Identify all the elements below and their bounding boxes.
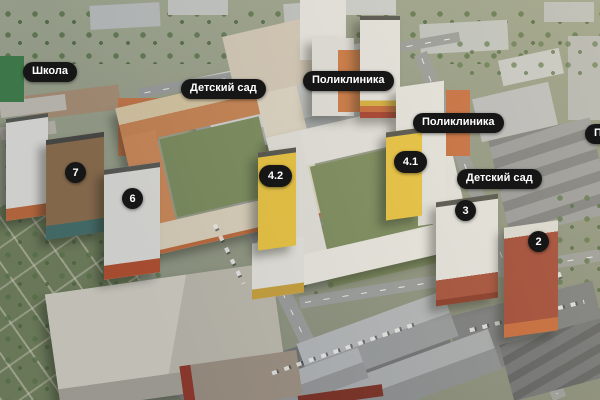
residential-tower-7 [46,132,104,240]
building-marker-3[interactable]: 3 [455,200,476,221]
residential-tower-6 [104,162,160,280]
building-marker-6[interactable]: 6 [122,188,143,209]
bg-city-block [346,0,396,15]
residential-tower-4-2 [258,147,296,250]
building-marker-4-1[interactable]: 4.1 [394,151,427,173]
building-marker-2[interactable]: 2 [528,231,549,252]
bg-city-block [89,2,160,30]
poi-label-polyclinic-1[interactable]: Поликлиника [303,71,394,91]
poi-label-polyclinic-2[interactable]: Поликлиника [413,113,504,133]
residential-tower-white [6,113,48,221]
poi-label-kindergarten-1[interactable]: Детский сад [181,79,266,99]
poi-label-truncated[interactable]: П [585,124,600,144]
bg-city-block [544,2,594,22]
building-marker-7[interactable]: 7 [65,162,86,183]
poi-label-kindergarten-2[interactable]: Детский сад [457,169,542,189]
masterplan-aerial-view: Школа Детский сад Поликлиника Поликлиник… [0,0,600,400]
poi-label-school[interactable]: Школа [23,62,77,82]
sports-field [0,56,24,102]
trees-patch [452,36,600,80]
building-marker-4-2[interactable]: 4.2 [259,165,292,187]
polyclinic-tower-1 [360,16,400,118]
residential-tower-4-1 [386,127,422,220]
bg-city-block [168,0,228,15]
